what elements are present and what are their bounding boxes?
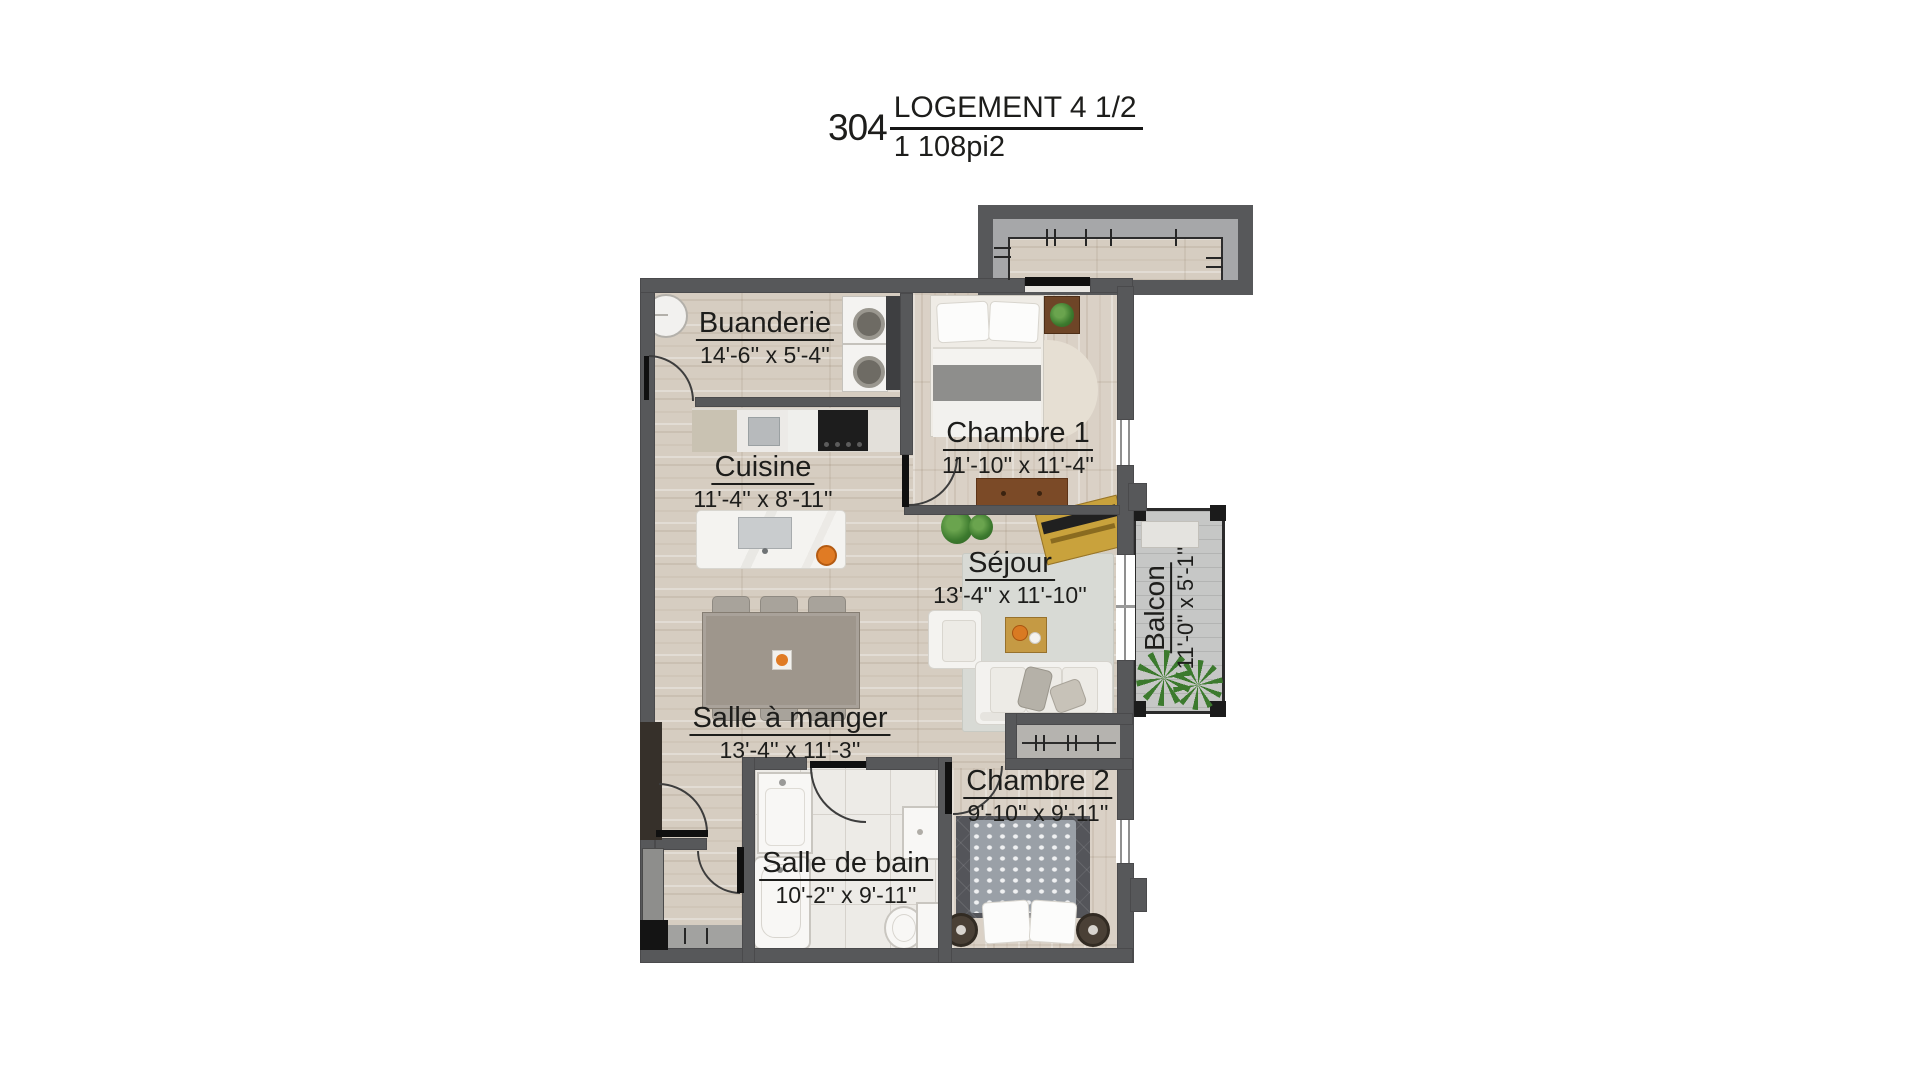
structural-column [640,920,668,950]
door-arc-buanderie [647,355,695,403]
armchair-cushion [942,620,976,662]
dining-table [702,612,860,709]
door-leaf-buanderie [644,356,649,400]
window [1116,420,1135,465]
closet-hanger-tick [1097,735,1099,751]
closet-entry-gray [642,848,664,924]
dresser-chambre1 [976,478,1068,508]
room-label-chambre-2: Chambre 2 9'-10'' x 9'-11'' [963,766,1112,828]
railing-post-tick [1206,266,1223,268]
entry-door-threshold [1025,286,1090,292]
wall-exterior-right [1117,286,1134,420]
centerpiece-bowl [776,654,788,666]
bed-chambre1 [930,295,1044,437]
room-label-buanderie: Buanderie 14'-6'' x 5'-4'' [696,308,834,370]
kitchen-island [696,510,846,569]
room-dimensions: 11'-4'' x 8'-11'' [693,486,832,514]
room-name: Chambre 1 [943,418,1092,451]
pillow [982,899,1032,944]
armchair [928,610,982,669]
closet-hanger-tick [1043,735,1045,751]
floor-entry-mat [668,925,752,948]
window-frame-line [1120,820,1122,863]
room-name: Salle à manger [689,703,890,736]
walkway-floor [1008,238,1223,280]
wall-pier [1128,483,1147,511]
kitchen-counter-white [788,410,818,452]
walkway-railing [1008,237,1010,280]
unit-number: 304 [828,109,887,146]
railing-post-tick [994,247,1011,249]
railing-post-tick [994,256,1011,258]
room-label-salle-a-manger: Salle à manger 13'-4'' x 11'-3'' [689,703,890,765]
kitchen-cabinet [692,410,737,452]
kitchen-counter-end [868,410,902,452]
laundry-cabinet [886,296,901,390]
island-faucet [762,548,768,554]
room-label-balcon-inner: Balcon 11'-0'' x 5'-1'' [1140,547,1200,670]
railing-post-tick [1206,257,1223,259]
door-leaf-chambre2 [945,762,952,814]
window [1116,820,1135,863]
title-fraction: LOGEMENT 4 1/2 1 108pi2 [890,92,1143,163]
walkway-railing [1008,237,1223,239]
wall-sejour-closet [1005,713,1133,725]
toilet-seat-line [892,914,916,942]
railing-post-tick [1046,229,1048,246]
room-dimensions: 11'-10'' x 11'-4'' [942,452,1094,480]
plant-icon [969,514,993,540]
room-name: Cuisine [712,452,815,485]
room-dimensions: 11'-0'' x 5'-1'' [1174,547,1200,670]
plan-title-area: 1 108pi2 [890,130,1005,164]
washer-icon [842,296,888,344]
window-frame-line [1128,420,1130,465]
balcony-post [1210,505,1226,521]
dryer-door [853,356,885,388]
railing-post-tick [1110,229,1112,246]
dryer-icon [842,344,888,392]
room-label-cuisine: Cuisine 11'-4'' x 8'-11'' [693,452,832,514]
room-name: Chambre 2 [963,766,1112,799]
railing-post-tick [1175,229,1177,246]
wall-exterior-top [640,278,1025,293]
room-dimensions: 9'-10'' x 9'-11'' [963,800,1112,828]
coffee-table-plate [1012,625,1028,641]
nightstand-round [1076,913,1110,947]
closet-hanger-tick [1075,735,1077,751]
room-dimensions: 10'-2'' x 9'-11'' [759,882,933,910]
wall-pier [1130,878,1147,912]
room-name: Salle de bain [759,848,933,881]
room-name: Séjour [965,548,1055,581]
plant-icon [1050,303,1074,327]
door-leaf-closet [656,830,708,837]
wall-buanderie-bottom [695,397,913,407]
table-centerpiece [772,650,792,670]
stove-icon [818,410,868,451]
wall-cuisine-chambre1 [900,293,913,455]
railing-post-tick [1085,229,1087,246]
washer-door [853,308,885,340]
kitchen-sink-unit [737,410,788,452]
coffee-table [1005,617,1047,653]
room-label-balcon: Balcon 11'-0'' x 5'-1'' [1118,538,1222,678]
door-arc-salle-de-bain [810,766,867,823]
window-frame-line [1128,820,1130,863]
nightstand-chambre1 [1044,296,1080,334]
dresser-knob [1001,491,1006,496]
window-frame-line [1120,420,1122,465]
closet-hanger-tick [1035,735,1037,751]
railing-post-tick [1054,229,1056,246]
room-name: Balcon [1140,562,1172,654]
island-sink [738,517,792,549]
room-label-sejour: Séjour 13'-4'' x 11'-10'' [933,548,1087,610]
wall-exterior-bottom [640,948,1133,963]
entry-mat-tick [706,928,708,944]
door-arc-vestibule [697,850,741,894]
entry-mat-tick [684,928,686,944]
plan-title: 304 LOGEMENT 4 1/2 1 108pi2 [828,92,1143,163]
pillow [1029,899,1078,944]
room-label-chambre-1: Chambre 1 11'-10'' x 11'-4'' [942,418,1094,480]
stove-knob [824,442,829,447]
room-dimensions: 14'-6'' x 5'-4'' [696,342,834,370]
room-name: Buanderie [696,308,834,341]
shower-head [779,779,786,786]
closet-hanger-tick [1067,735,1069,751]
room-dimensions: 13'-4'' x 11'-10'' [933,582,1087,610]
fruit-bowl-icon [816,545,837,566]
pillow [988,301,1040,344]
door-leaf-vestibule [737,847,744,893]
room-label-salle-de-bain: Salle de bain 10'-2'' x 9'-11'' [759,848,933,910]
door-leaf-chambre1 [902,455,909,507]
room-dimensions: 13'-4'' x 11'-3'' [689,737,890,765]
plan-title-name: LOGEMENT 4 1/2 [890,92,1143,130]
shower-pan-line [765,788,805,846]
floor-plan-page: 304 LOGEMENT 4 1/2 1 108pi2 [0,0,1920,1080]
entry-door [1025,277,1090,286]
shower [757,772,813,854]
sink-drain [917,829,923,835]
pillow [936,301,990,344]
kitchen-sink [748,417,780,446]
coffee-table-dish [1029,632,1041,644]
door-arc-closet [658,783,708,833]
